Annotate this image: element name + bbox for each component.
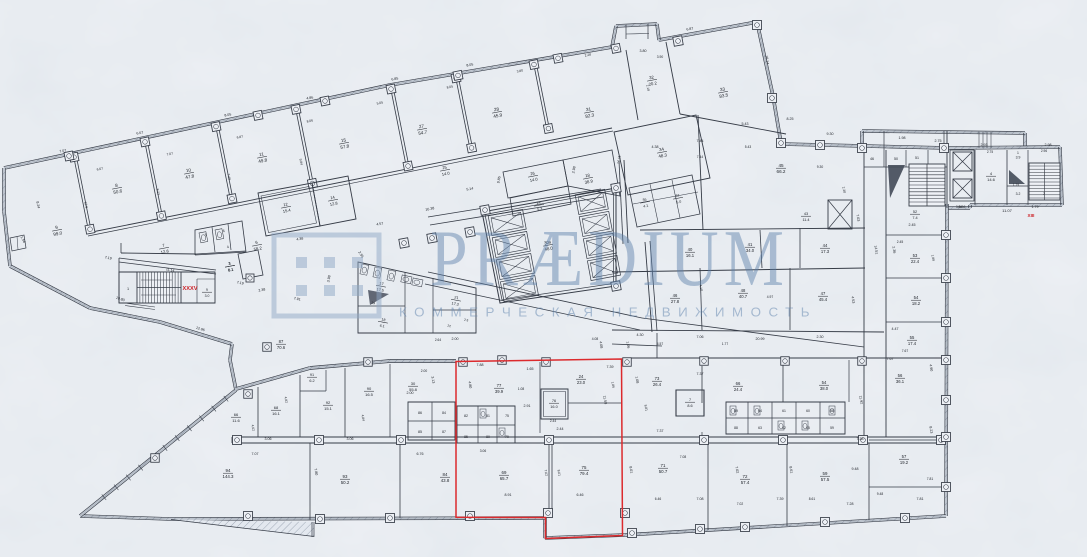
svg-text:9.30: 9.30	[827, 132, 834, 136]
svg-text:61: 61	[782, 409, 786, 413]
svg-text:15.1: 15.1	[324, 406, 333, 411]
svg-text:75: 75	[582, 465, 587, 470]
svg-text:7.67: 7.67	[902, 349, 909, 353]
svg-text:1.79: 1.79	[1032, 205, 1039, 209]
svg-text:59: 59	[830, 426, 834, 430]
svg-text:2.30: 2.30	[817, 335, 824, 339]
svg-text:57.4: 57.4	[741, 480, 750, 485]
svg-text:1.79: 1.79	[1013, 183, 1019, 187]
svg-text:30: 30	[411, 381, 416, 386]
svg-text:51: 51	[915, 156, 919, 160]
svg-text:47: 47	[821, 291, 826, 296]
svg-text:66.2: 66.2	[777, 169, 786, 174]
svg-text:3.06: 3.06	[265, 437, 272, 441]
svg-text:24.4: 24.4	[734, 387, 743, 392]
svg-text:45.4: 45.4	[819, 297, 828, 302]
svg-text:57: 57	[902, 454, 907, 459]
svg-text:63: 63	[758, 426, 762, 430]
svg-text:3.06: 3.06	[480, 449, 487, 453]
svg-text:2.44: 2.44	[550, 419, 556, 423]
svg-text:17.3: 17.3	[821, 249, 830, 254]
svg-text:6.76: 6.76	[417, 452, 424, 456]
svg-text:75: 75	[505, 414, 509, 418]
svg-text:2.98: 2.98	[1045, 143, 1052, 147]
svg-text:2.00: 2.00	[407, 391, 414, 395]
svg-text:8.6: 8.6	[687, 404, 692, 408]
svg-text:4.08: 4.08	[592, 337, 599, 341]
svg-text:52: 52	[913, 210, 917, 214]
svg-text:1.65: 1.65	[527, 367, 534, 371]
svg-text:65.7: 65.7	[500, 476, 509, 481]
svg-text:144.3: 144.3	[223, 474, 235, 479]
svg-text:54: 54	[914, 295, 919, 300]
svg-text:1.98: 1.98	[899, 136, 906, 140]
svg-text:36.1: 36.1	[896, 379, 905, 384]
svg-text:73: 73	[655, 376, 660, 381]
svg-text:50.7: 50.7	[659, 469, 668, 474]
svg-text:16.1: 16.1	[272, 411, 281, 416]
svg-text:44: 44	[823, 243, 828, 248]
svg-text:94: 94	[226, 468, 231, 473]
svg-text:8.25: 8.25	[787, 117, 794, 121]
svg-text:53: 53	[913, 253, 918, 258]
svg-text:90: 90	[367, 386, 372, 391]
svg-text:46: 46	[870, 157, 874, 161]
svg-text:4.30: 4.30	[637, 333, 644, 337]
svg-text:7.08: 7.08	[697, 497, 704, 501]
svg-text:66: 66	[736, 381, 741, 386]
svg-text:16.5: 16.5	[365, 392, 374, 397]
svg-text:80: 80	[486, 435, 490, 439]
svg-text:36: 36	[642, 197, 647, 202]
svg-text:17.4: 17.4	[908, 341, 917, 346]
svg-text:3.0: 3.0	[205, 294, 210, 298]
svg-text:4.57: 4.57	[657, 342, 664, 346]
svg-text:92: 92	[326, 400, 331, 405]
svg-text:КОММЕРЧЕСКАЯ НЕДВИЖИМОСТЬ: КОММЕРЧЕСКАЯ НЕДВИЖИМОСТЬ	[399, 306, 817, 320]
svg-text:2.96: 2.96	[1041, 149, 1047, 153]
svg-text:9.30: 9.30	[817, 165, 824, 169]
svg-text:2.75: 2.75	[987, 150, 993, 154]
svg-text:2.75: 2.75	[935, 139, 942, 143]
svg-text:20.99: 20.99	[756, 337, 765, 341]
svg-text:7.02: 7.02	[737, 502, 744, 506]
svg-text:86: 86	[418, 411, 422, 415]
svg-text:76: 76	[552, 399, 556, 403]
svg-text:55: 55	[910, 335, 915, 340]
svg-text:60: 60	[806, 409, 810, 413]
svg-text:50.2: 50.2	[341, 480, 350, 485]
svg-text:7.37: 7.37	[657, 429, 664, 433]
svg-text:8.91: 8.91	[505, 493, 512, 497]
svg-text:2.64: 2.64	[435, 338, 441, 342]
svg-text:7.44: 7.44	[697, 139, 704, 143]
svg-text:3.2: 3.2	[1016, 192, 1021, 196]
svg-text:11.4: 11.4	[802, 218, 809, 222]
svg-text:7.88: 7.88	[477, 363, 484, 367]
svg-text:26.4: 26.4	[653, 382, 662, 387]
svg-text:7.39: 7.39	[607, 365, 614, 369]
svg-text:2.00: 2.00	[421, 369, 428, 373]
svg-text:2.00: 2.00	[452, 337, 459, 341]
svg-text:84: 84	[443, 472, 448, 477]
svg-text:1: 1	[1017, 151, 1019, 155]
svg-text:23.0: 23.0	[577, 380, 586, 385]
svg-text:11.07: 11.07	[1002, 208, 1012, 213]
svg-text:19.2: 19.2	[900, 460, 909, 465]
svg-text:7.07: 7.07	[252, 452, 259, 456]
svg-text:22.4: 22.4	[911, 259, 920, 264]
svg-text:2.93: 2.93	[981, 143, 988, 147]
svg-text:8.61: 8.61	[809, 497, 816, 501]
svg-text:87: 87	[442, 430, 446, 434]
svg-text:7.81: 7.81	[917, 497, 924, 501]
svg-text:9: 9	[206, 288, 208, 292]
svg-text:18: 18	[381, 317, 386, 322]
svg-text:85: 85	[418, 430, 422, 434]
svg-text:71: 71	[661, 463, 666, 468]
svg-text:93: 93	[343, 474, 348, 479]
svg-text:2.44: 2.44	[557, 427, 564, 431]
svg-text:7.08: 7.08	[680, 455, 687, 459]
svg-text:1.08: 1.08	[518, 387, 525, 391]
svg-text:54: 54	[822, 380, 827, 385]
svg-text:5.43: 5.43	[742, 122, 749, 126]
svg-text:57.5: 57.5	[821, 477, 830, 482]
svg-text:7.81: 7.81	[927, 477, 934, 481]
svg-text:2.45: 2.45	[909, 223, 916, 227]
svg-text:7.37: 7.37	[697, 372, 704, 376]
svg-text:79: 79	[505, 435, 509, 439]
svg-text:87: 87	[279, 339, 284, 344]
svg-text:56: 56	[898, 373, 903, 378]
svg-text:68: 68	[274, 405, 279, 410]
svg-text:6.46: 6.46	[577, 493, 584, 497]
svg-text:PRÆDIUM: PRÆDIUM	[430, 215, 789, 303]
svg-text:9.48: 9.48	[877, 492, 884, 496]
svg-text:6.2: 6.2	[309, 379, 314, 383]
svg-text:6.46: 6.46	[655, 497, 662, 501]
svg-text:66: 66	[234, 412, 239, 417]
svg-text:37: 37	[675, 193, 680, 198]
svg-text:XIII: XIII	[1028, 213, 1035, 218]
svg-text:70.6: 70.6	[277, 345, 286, 350]
svg-text:82: 82	[464, 414, 468, 418]
svg-text:7.39: 7.39	[777, 497, 784, 501]
svg-text:39.9: 39.9	[495, 389, 504, 394]
svg-text:79.4: 79.4	[580, 471, 589, 476]
svg-text:91: 91	[310, 373, 314, 377]
svg-text:77: 77	[497, 383, 502, 388]
svg-text:7.28: 7.28	[847, 502, 854, 506]
svg-text:85: 85	[464, 435, 468, 439]
svg-text:38.0: 38.0	[820, 386, 829, 391]
svg-text:4.38: 4.38	[652, 145, 659, 149]
svg-text:2.45: 2.45	[897, 240, 904, 244]
svg-text:24: 24	[579, 374, 584, 379]
svg-text:7.67: 7.67	[887, 357, 894, 361]
svg-text:81: 81	[486, 414, 490, 418]
svg-text:2.91: 2.91	[524, 404, 531, 408]
svg-text:5.43: 5.43	[745, 145, 752, 149]
svg-text:4.47: 4.47	[892, 327, 899, 331]
svg-text:18.2: 18.2	[912, 301, 921, 306]
svg-text:50: 50	[894, 157, 898, 161]
svg-text:7.06: 7.06	[697, 335, 704, 339]
svg-text:59: 59	[823, 471, 828, 476]
svg-text:7.44: 7.44	[697, 155, 704, 159]
svg-text:1: 1	[127, 287, 129, 291]
svg-text:84: 84	[442, 411, 446, 415]
svg-text:16.0: 16.0	[550, 405, 557, 409]
svg-text:9.48: 9.48	[852, 467, 859, 471]
svg-text:88: 88	[734, 426, 738, 430]
svg-text:11.6: 11.6	[232, 418, 240, 423]
svg-text:72: 72	[743, 474, 748, 479]
svg-text:7: 7	[689, 398, 691, 402]
svg-text:7.4: 7.4	[912, 216, 917, 220]
svg-text:3.06: 3.06	[347, 437, 354, 441]
svg-text:14.6: 14.6	[987, 177, 996, 182]
svg-text:3.90: 3.90	[657, 55, 664, 59]
svg-text:45: 45	[778, 163, 784, 168]
svg-text:3.80: 3.80	[640, 49, 647, 53]
svg-text:2: 2	[1043, 192, 1045, 196]
svg-text:1.77: 1.77	[722, 342, 729, 346]
svg-text:58: 58	[830, 409, 834, 413]
svg-text:69: 69	[502, 470, 507, 475]
svg-text:43: 43	[804, 212, 808, 216]
svg-text:43.8: 43.8	[441, 478, 450, 483]
svg-text:3.9: 3.9	[1016, 156, 1021, 160]
svg-text:3.66: 3.66	[959, 205, 966, 209]
svg-text:7.38: 7.38	[857, 437, 864, 441]
svg-text:XXXV: XXXV	[183, 286, 198, 292]
